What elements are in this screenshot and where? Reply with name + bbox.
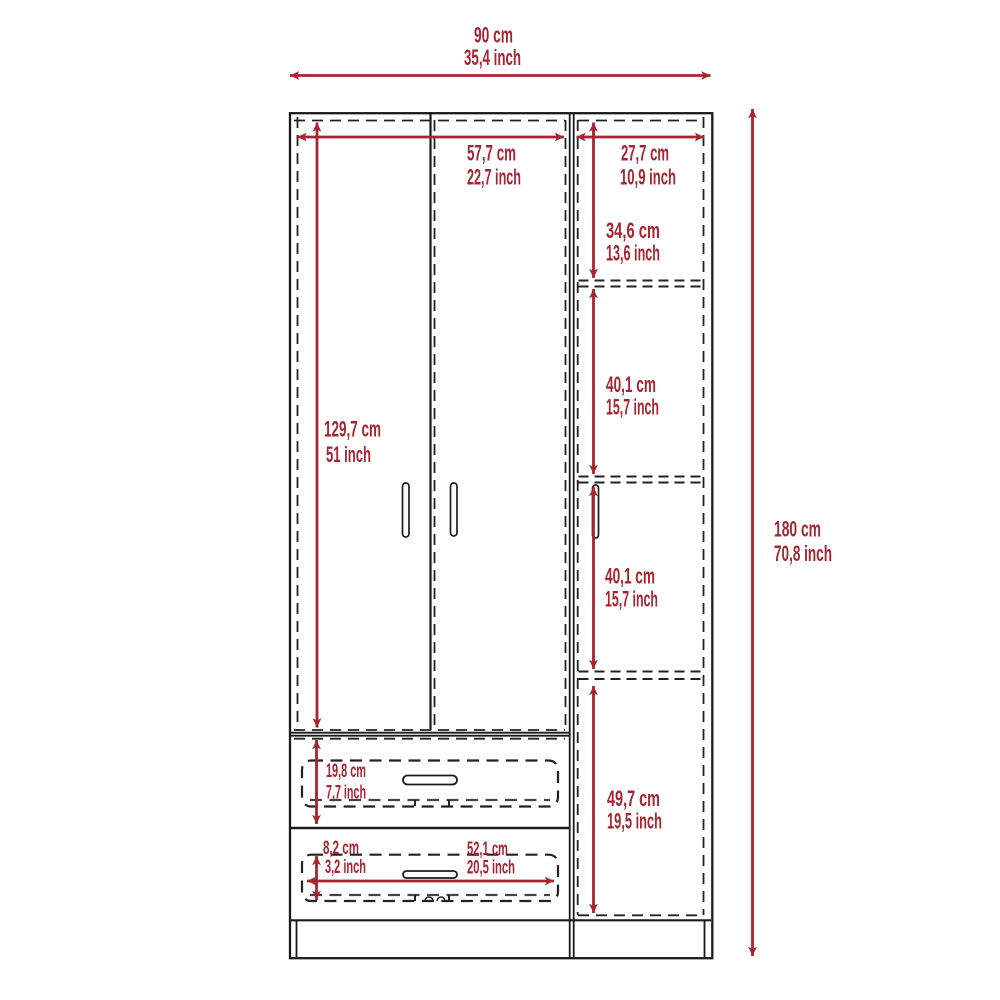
svg-text:22,7 inch: 22,7 inch (467, 164, 521, 189)
svg-text:7,7 inch: 7,7 inch (326, 783, 366, 804)
svg-text:180 cm: 180 cm (774, 517, 821, 542)
svg-text:27,7 cm: 27,7 cm (621, 141, 669, 166)
svg-text:13,6 inch: 13,6 inch (606, 241, 660, 266)
svg-text:49,7 cm: 49,7 cm (607, 786, 660, 811)
svg-text:90 cm: 90 cm (474, 23, 513, 48)
svg-text:35,4 inch: 35,4 inch (464, 45, 521, 70)
svg-text:3,2 inch: 3,2 inch (325, 857, 366, 878)
svg-text:15,7 inch: 15,7 inch (605, 587, 658, 612)
svg-text:20,5 inch: 20,5 inch (467, 858, 515, 879)
svg-text:51 inch: 51 inch (326, 442, 371, 467)
svg-text:34,6 cm: 34,6 cm (606, 218, 660, 243)
svg-text:70,8 inch: 70,8 inch (774, 541, 832, 566)
svg-text:57,7 cm: 57,7 cm (467, 141, 516, 166)
svg-text:40,1 cm: 40,1 cm (605, 564, 655, 589)
svg-text:10,9 inch: 10,9 inch (620, 164, 676, 189)
svg-text:19,5 inch: 19,5 inch (607, 809, 662, 834)
svg-text:129,7 cm: 129,7 cm (324, 417, 381, 442)
svg-text:15,7 inch: 15,7 inch (606, 395, 659, 420)
svg-text:40,1 cm: 40,1 cm (606, 372, 656, 397)
svg-text:19,8 cm: 19,8 cm (326, 761, 366, 782)
